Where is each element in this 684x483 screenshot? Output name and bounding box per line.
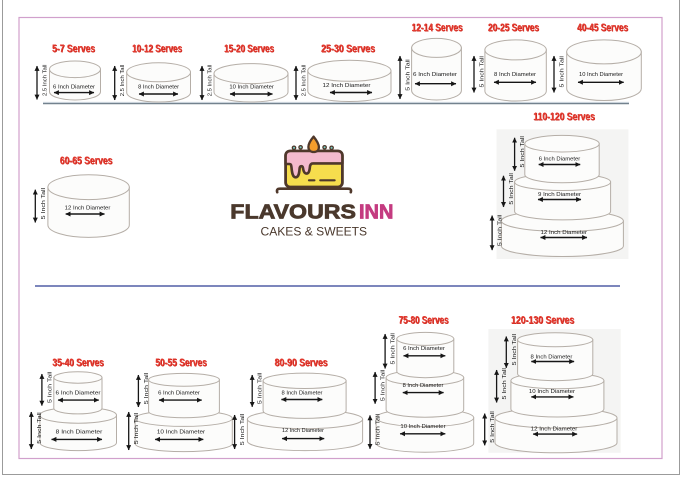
- svg-text:110-120 Serves: 110-120 Serves: [533, 111, 595, 123]
- svg-text:5 Inch Tall: 5 Inch Tall: [520, 136, 526, 168]
- svg-text:FLAVOURS: FLAVOURS: [230, 201, 356, 224]
- svg-text:50-55 Serves: 50-55 Serves: [155, 357, 207, 369]
- svg-text:8 Inch Diameter: 8 Inch Diameter: [403, 383, 444, 389]
- svg-text:5 Inch Tall: 5 Inch Tall: [134, 413, 140, 445]
- svg-text:80-90 Serves: 80-90 Serves: [275, 357, 328, 369]
- svg-text:6 Inch Diameter: 6 Inch Diameter: [539, 156, 581, 162]
- svg-text:2.5 Inch Tall: 2.5 Inch Tall: [208, 65, 214, 97]
- svg-text:12 Inch Diameter: 12 Inch Diameter: [541, 230, 588, 236]
- svg-text:5 Inch Tall: 5 Inch Tall: [240, 414, 246, 446]
- svg-text:10 Inch Diameter: 10 Inch Diameter: [579, 72, 623, 78]
- svg-text:2.5 Inch Tall: 2.5 Inch Tall: [302, 65, 308, 97]
- svg-text:5 Inch Tall: 5 Inch Tall: [406, 59, 412, 91]
- svg-text:10 Inch Diameter: 10 Inch Diameter: [529, 389, 575, 395]
- svg-text:5 Inch Tall: 5 Inch Tall: [512, 334, 518, 366]
- svg-text:5 Inch Tall: 5 Inch Tall: [376, 414, 382, 446]
- svg-text:2.5 Inch Tall: 2.5 Inch Tall: [120, 65, 126, 97]
- svg-text:10 Inch Diameter: 10 Inch Diameter: [400, 424, 445, 430]
- svg-text:INN: INN: [359, 201, 393, 224]
- svg-text:8 Inch Diameter: 8 Inch Diameter: [56, 429, 103, 435]
- svg-text:5-7 Serves: 5-7 Serves: [52, 43, 95, 55]
- svg-text:9 Inch Diameter: 9 Inch Diameter: [538, 192, 581, 198]
- svg-text:10 Inch Diameter: 10 Inch Diameter: [229, 85, 274, 91]
- svg-text:8 Inch Diameter: 8 Inch Diameter: [531, 355, 573, 361]
- svg-text:5 Inch Tall: 5 Inch Tall: [41, 188, 47, 220]
- svg-text:5 Inch Tall: 5 Inch Tall: [391, 333, 397, 365]
- svg-text:60-65 Serves: 60-65 Serves: [60, 155, 113, 167]
- svg-text:CAKES & SWEETS: CAKES & SWEETS: [261, 225, 368, 239]
- svg-text:20-25 Serves: 20-25 Serves: [488, 22, 539, 34]
- svg-text:12-14 Serves: 12-14 Serves: [412, 22, 463, 34]
- svg-text:75-80 Serves: 75-80 Serves: [399, 314, 449, 326]
- svg-text:6 Inch Diameter: 6 Inch Diameter: [56, 391, 101, 397]
- svg-text:12 Inch Diameter: 12 Inch Diameter: [531, 426, 578, 432]
- svg-text:5 Inch Tall: 5 Inch Tall: [144, 373, 150, 405]
- svg-text:120-130 Serves: 120-130 Serves: [511, 314, 574, 326]
- svg-text:8 Inch Diameter: 8 Inch Diameter: [282, 391, 323, 397]
- svg-text:5 Inch Tall: 5 Inch Tall: [381, 370, 387, 402]
- svg-text:35-40 Serves: 35-40 Serves: [52, 357, 103, 369]
- svg-text:5 Inch Tall: 5 Inch Tall: [509, 173, 515, 205]
- svg-text:5 Inch Tall: 5 Inch Tall: [490, 411, 496, 443]
- svg-text:5 Inch Tall: 5 Inch Tall: [480, 56, 486, 88]
- svg-text:6 Inch Diameter: 6 Inch Diameter: [413, 72, 457, 78]
- svg-text:5 Inch Tall: 5 Inch Tall: [502, 368, 508, 400]
- svg-text:40-45 Serves: 40-45 Serves: [577, 22, 628, 34]
- svg-text:8 Inch Diameter: 8 Inch Diameter: [138, 85, 179, 91]
- svg-text:5 Inch Tall: 5 Inch Tall: [498, 215, 504, 247]
- svg-text:10 Inch Diameter: 10 Inch Diameter: [157, 429, 205, 435]
- svg-text:8 Inch Diameter: 8 Inch Diameter: [494, 72, 536, 78]
- svg-text:25-30 Serves: 25-30 Serves: [321, 43, 375, 55]
- svg-text:12 Inch Diameter: 12 Inch Diameter: [282, 428, 324, 434]
- svg-text:12 Inch Diameter: 12 Inch Diameter: [65, 206, 111, 212]
- svg-text:6 Inch Diameter: 6 Inch Diameter: [53, 85, 95, 91]
- svg-text:2.5 Inch Tall: 2.5 Inch Tall: [43, 65, 49, 97]
- svg-text:15-20 Serves: 15-20 Serves: [224, 43, 274, 55]
- svg-text:5 Inch Tall: 5 Inch Tall: [560, 56, 566, 88]
- svg-text:5 Inch Tall: 5 Inch Tall: [47, 372, 53, 404]
- svg-text:6 Inch Diameter: 6 Inch Diameter: [158, 391, 200, 397]
- svg-text:12 Inch Diameter: 12 Inch Diameter: [323, 83, 371, 89]
- svg-text:5 Inch Tall: 5 Inch Tall: [37, 412, 43, 444]
- svg-text:6 Inch Diameter: 6 Inch Diameter: [403, 346, 445, 352]
- svg-text:5 Inch Tall: 5 Inch Tall: [258, 373, 264, 405]
- svg-text:10-12 Serves: 10-12 Serves: [132, 43, 182, 55]
